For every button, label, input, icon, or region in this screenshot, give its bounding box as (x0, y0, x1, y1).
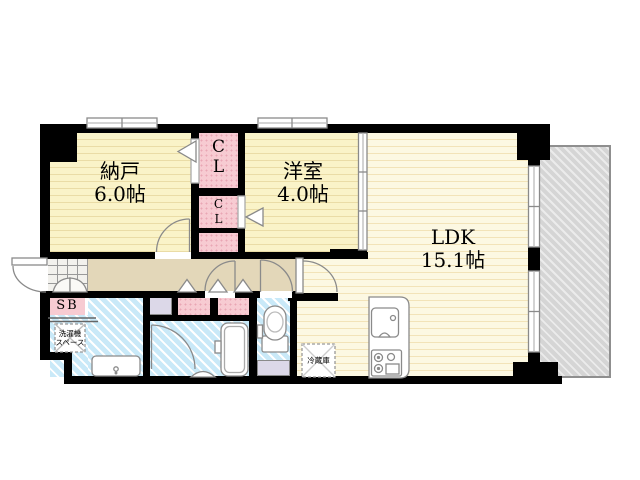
kitchen-counter (369, 297, 409, 378)
window-right-lower (529, 271, 540, 352)
washroom-slide-door (48, 318, 98, 322)
ldk-name: LDK (398, 226, 508, 249)
ldk-size: 15.1帖 (398, 249, 508, 272)
cl1-arrow (178, 141, 196, 162)
ldk-label: LDK 15.1帖 (398, 226, 508, 272)
fixtures-layer (0, 0, 640, 480)
bathroom-door (152, 325, 196, 369)
cl2-arrow (246, 208, 263, 226)
laundry-space-label: 洗濯機 スペース (54, 329, 86, 348)
window-top-yoshitsu (258, 118, 327, 128)
sliding-partition (359, 133, 368, 250)
nando-door (157, 219, 190, 252)
closet-cl2-label: C L (199, 197, 238, 227)
folding-door-marks (178, 280, 252, 293)
shoebox-doors (53, 278, 87, 292)
bathtub (191, 323, 248, 377)
western-room-name: 洋室 (248, 160, 358, 183)
western-room-label: 洋室 4.0帖 (248, 160, 358, 206)
cl2-letter-c: C (199, 197, 238, 212)
storage-room-label: 納戸 6.0帖 (70, 160, 170, 206)
laundry-line1: 洗濯機 (54, 329, 86, 338)
western-room-size: 4.0帖 (248, 183, 358, 206)
storage-room-name: 納戸 (70, 160, 170, 183)
floorplan: 納戸 6.0帖 洋室 4.0帖 LDK 15.1帖 C L C L SB 洗濯機… (0, 0, 640, 480)
cl1-letter-l: L (199, 157, 238, 177)
shoe-box-label: SB (50, 299, 85, 314)
window-right-upper (529, 166, 540, 247)
window-top-nando (87, 118, 157, 128)
cl1-letter-c: C (199, 137, 238, 157)
toilet-door (261, 260, 293, 292)
ldk-door (296, 258, 337, 293)
entrance-door (12, 258, 47, 292)
laundry-line2: スペース (54, 338, 86, 347)
fridge-label: 冷蔵庫 (302, 356, 335, 365)
closet-cl1-label: C L (199, 137, 238, 178)
toilet-fixture (258, 306, 289, 352)
storage-room-size: 6.0帖 (70, 183, 170, 206)
vanity-sink (92, 356, 140, 376)
cl2-letter-l: L (199, 212, 238, 227)
cl2-door (238, 196, 245, 228)
